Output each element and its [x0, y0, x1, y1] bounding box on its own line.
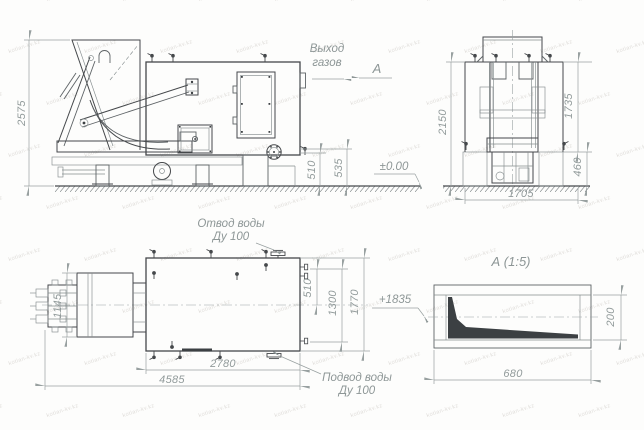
- dim-detail-length: 680: [434, 350, 591, 384]
- dim-text: 1145: [52, 293, 64, 318]
- water-outlet-flange: [271, 250, 285, 258]
- valve-icon: [261, 54, 267, 63]
- dim-plan-1300: 1300: [310, 269, 348, 342]
- ground-hatch: [55, 187, 420, 193]
- dim-front-body-height: 1735: [563, 62, 592, 152]
- firing-hatch: [178, 125, 212, 153]
- dim-text: 680: [503, 368, 523, 380]
- dim-front-overall-height: 2150: [437, 62, 465, 186]
- bolt-icon: [235, 272, 239, 280]
- gas-outlet-label: Выход: [310, 43, 345, 55]
- water-inlet-annotation: Подвод воды Ду 100: [280, 356, 392, 397]
- dim-text: 1735: [563, 93, 575, 119]
- dim-detail-height: 200: [593, 295, 627, 340]
- valve-icon: [301, 147, 307, 156]
- section-a-marker: А: [359, 61, 392, 78]
- valve-icon: [525, 54, 531, 63]
- bolt-icon: [170, 341, 174, 349]
- dim-text: 1770: [349, 289, 361, 315]
- dim-text: 1300: [327, 290, 339, 316]
- dim-text: 4585: [159, 374, 185, 386]
- detail-title: А (1:5): [490, 254, 530, 269]
- section-label: А: [372, 61, 382, 76]
- detail-view-a: А (1:5) 680 200: [428, 254, 627, 384]
- elevation-label: ±0.00: [380, 161, 409, 173]
- gas-outlet-annotation: Выход газов: [310, 43, 345, 79]
- gas-outlet-label: газов: [312, 57, 341, 69]
- pipe-loop: [492, 62, 506, 79]
- dim-text: 200: [605, 307, 617, 328]
- stoker-mechanism: [52, 56, 242, 187]
- water-outlet-annotation: Отвод воды Ду 100: [197, 218, 274, 250]
- dim-text: 510: [302, 278, 314, 298]
- valve-icon: [262, 250, 268, 259]
- bolt-icon: [300, 273, 308, 279]
- fuel-hopper: [60, 40, 140, 150]
- foundation-block: [539, 152, 563, 186]
- water-outlet-label: Отвод воды: [197, 218, 265, 230]
- dim-text: 460: [572, 157, 584, 177]
- dim-plan-overall-length: 4585: [45, 330, 300, 390]
- water-outlet-label: Ду 100: [211, 231, 250, 243]
- drain-flange: [267, 145, 281, 159]
- bolt-icon: [152, 271, 156, 279]
- chute-arc: [90, 100, 170, 149]
- dim-side-overall-height: 2575: [16, 40, 70, 186]
- right-wall: [538, 62, 563, 152]
- detail-frame: [434, 285, 591, 348]
- water-inlet-flange: [267, 351, 281, 359]
- boiler-door: [233, 72, 275, 138]
- boiler-body-side: [146, 54, 307, 187]
- valve-icon: [169, 54, 175, 63]
- front-view: 2150 1735 460 1705: [437, 30, 592, 204]
- dim-text: 2780: [209, 358, 236, 370]
- dim-text: 2575: [16, 100, 28, 127]
- dim-text: 2150: [437, 109, 449, 136]
- wedge-profile: [448, 297, 578, 339]
- water-inlet-label: Подвод воды: [322, 372, 392, 384]
- dim-text: 1705: [508, 188, 534, 200]
- hopper-symbol: [99, 51, 110, 64]
- left-wall: [465, 62, 490, 152]
- side-view: 2575 510 535 Выход газов А: [16, 40, 420, 192]
- valve-icon: [207, 250, 213, 259]
- valve-icon: [150, 250, 156, 259]
- bolt-icon: [264, 263, 268, 271]
- valve-icon: [492, 54, 498, 63]
- elevation-1835-marker: +1835: [372, 294, 424, 316]
- grate-slot: [182, 349, 212, 352]
- water-inlet-label: Ду 100: [337, 385, 376, 397]
- valve-icon: [176, 351, 182, 360]
- valve-icon: [471, 54, 477, 63]
- elevation-label: +1835: [379, 294, 412, 306]
- valve-icon: [148, 54, 154, 63]
- drawing-sheet: 2575 510 535 Выход газов А: [0, 0, 644, 430]
- dim-text: 510: [306, 160, 318, 180]
- bolt-icon: [300, 338, 308, 344]
- bolt-icon: [300, 264, 308, 270]
- gas-outlet-stub: [300, 73, 306, 88]
- dim-front-base-height: 460: [572, 152, 587, 186]
- foundation-block: [463, 152, 487, 186]
- pipe-loop: [519, 62, 533, 79]
- plan-view: 1145 510 1300 1770 278: [30, 218, 424, 397]
- dim-plan-outlet-offset: 510: [302, 269, 348, 305]
- valve-icon: [150, 351, 156, 360]
- dim-text: 535: [333, 158, 345, 178]
- dim-side-drain-heights: 510 535: [300, 149, 352, 186]
- elevation-zero-marker: ±0.00: [374, 161, 419, 182]
- engineering-drawing: kotlan-kv.kzkotlan-kv.kzkotlan-kv.kzkotl…: [0, 0, 644, 430]
- boiler-body-plan: [146, 258, 300, 351]
